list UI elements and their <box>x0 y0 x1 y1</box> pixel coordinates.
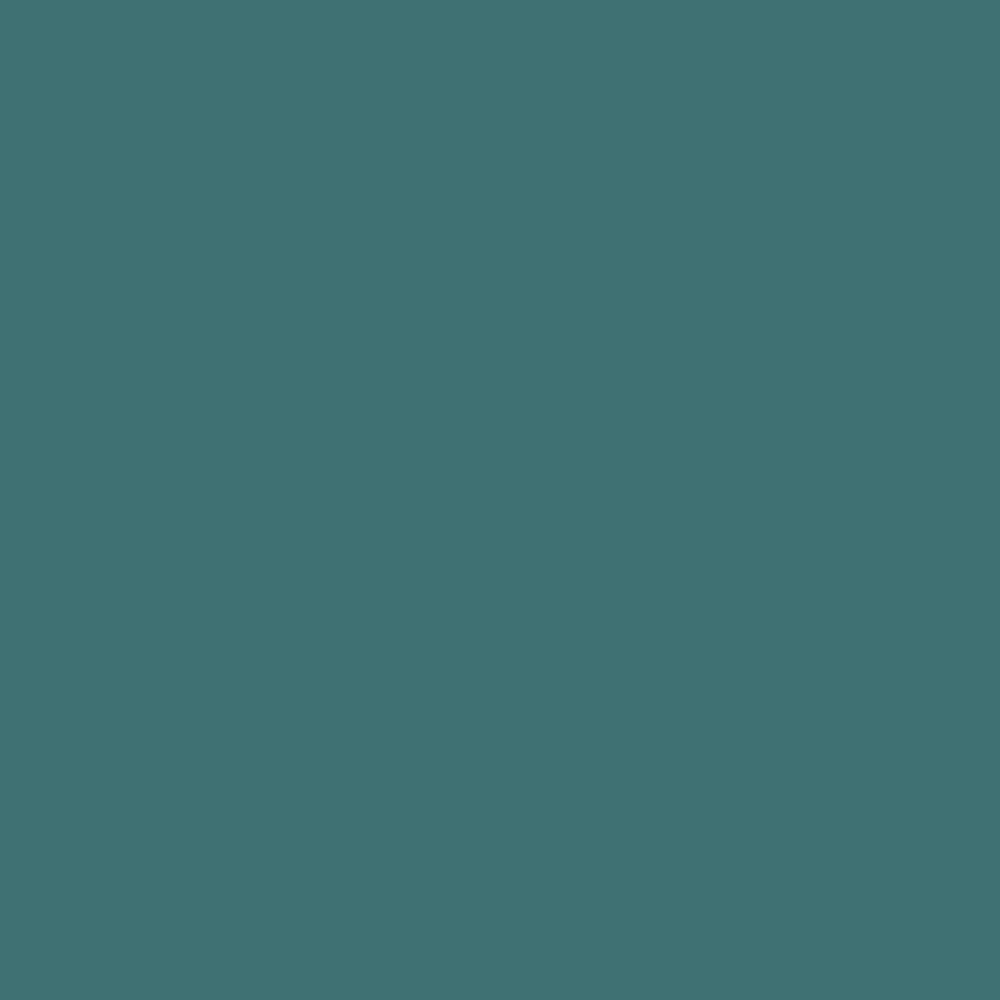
solid-teal-background <box>0 0 1000 1000</box>
